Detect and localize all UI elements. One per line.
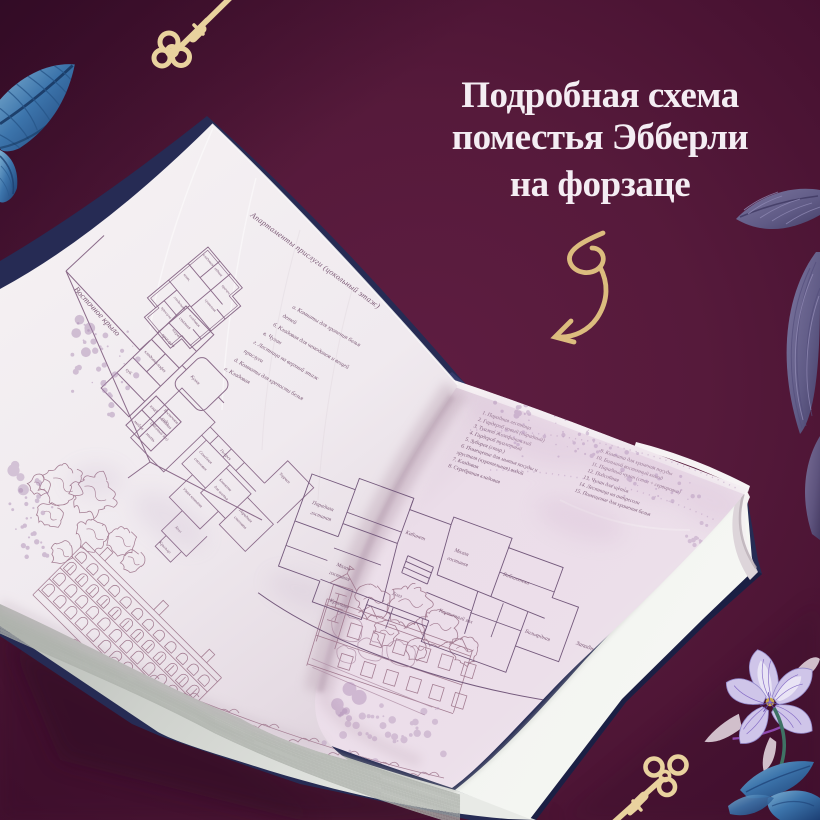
- svg-text:на форзаце: на форзаце: [510, 164, 690, 205]
- svg-text:Подробная схема: Подробная схема: [461, 75, 738, 116]
- svg-text:поместья Эбберли: поместья Эбберли: [452, 117, 749, 158]
